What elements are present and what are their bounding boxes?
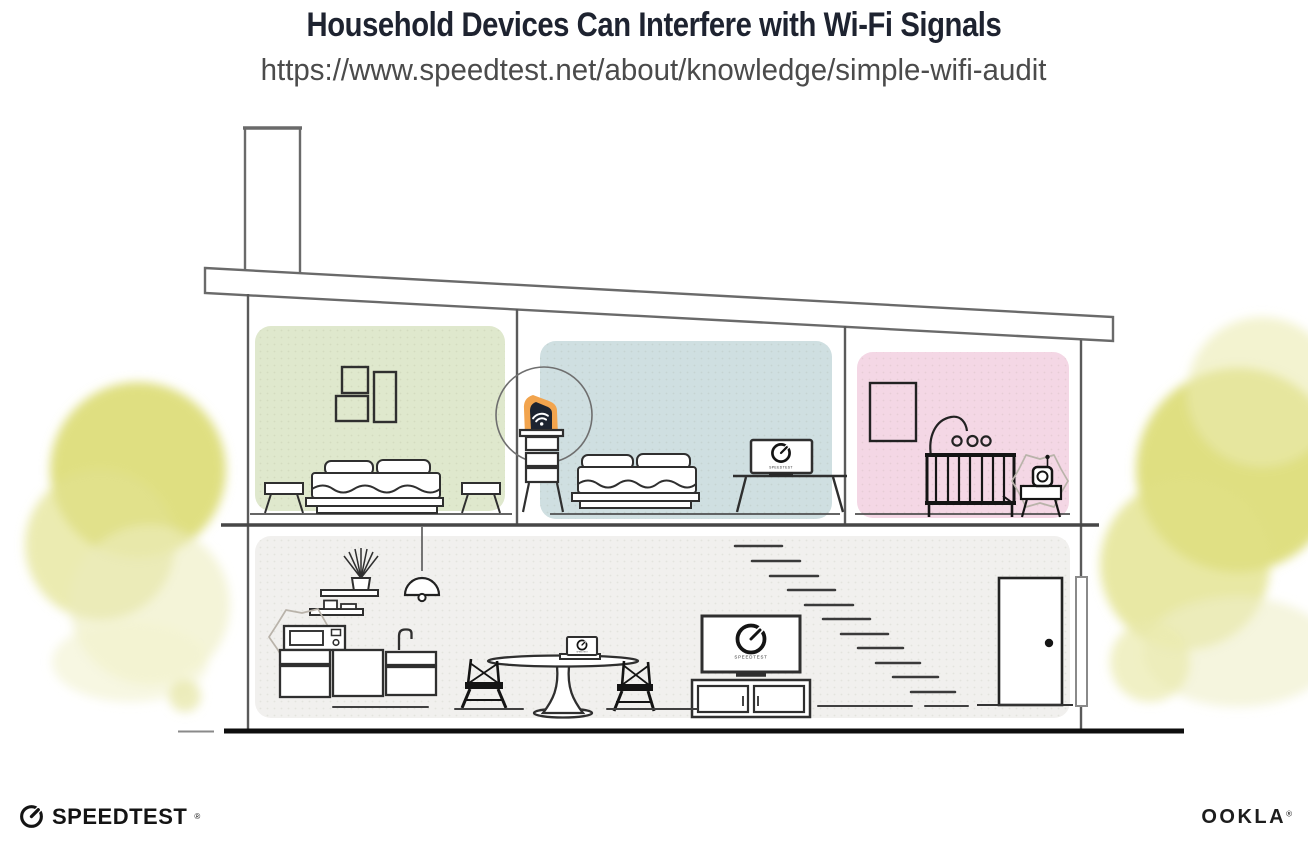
tv-speedtest: SPEEDTEST xyxy=(702,616,800,675)
microwave xyxy=(284,626,345,650)
ookla-logo-text: OOKLA xyxy=(1201,806,1286,828)
downspout xyxy=(1076,577,1087,706)
house-illustration: SPEEDTEST xyxy=(0,0,1308,861)
registered-mark: ® xyxy=(1286,810,1292,819)
infographic-canvas: Household Devices Can Interfere with Wi-… xyxy=(0,0,1308,861)
right-bush xyxy=(1100,317,1308,707)
left-bush xyxy=(25,382,230,712)
laptop-speedtest-small: SPEEDTEST xyxy=(560,637,600,659)
registered-mark: ® xyxy=(194,812,200,821)
speedtest-logo: SPEEDTEST® xyxy=(18,803,200,830)
tv-console xyxy=(692,680,810,717)
speedtest-gauge-icon xyxy=(18,803,45,830)
screen-label: SPEEDTEST xyxy=(769,466,793,470)
chimney xyxy=(245,128,300,274)
door-knob xyxy=(1045,639,1053,647)
ookla-logo: OOKLA® xyxy=(1201,806,1292,829)
screen-label: SPEEDTEST xyxy=(734,655,767,660)
screen-label: SPEEDTEST xyxy=(576,651,588,653)
laptop-speedtest: SPEEDTEST xyxy=(751,440,812,477)
speedtest-logo-text: SPEEDTEST xyxy=(52,804,187,830)
